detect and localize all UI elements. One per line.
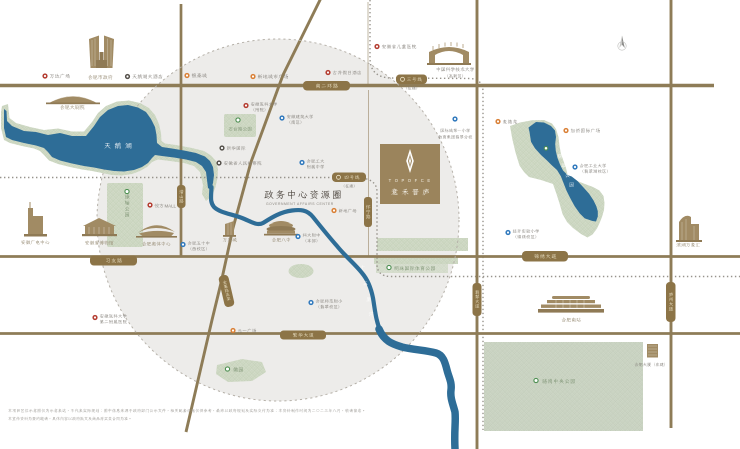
- svg-text:T O P O F C E: T O P O F C E: [389, 178, 432, 183]
- svg-text:GOVERNMENT AFFAIRS CENTER: GOVERNMENT AFFAIRS CENTER: [266, 202, 334, 206]
- svg-text:MALL: MALL: [165, 203, 177, 208]
